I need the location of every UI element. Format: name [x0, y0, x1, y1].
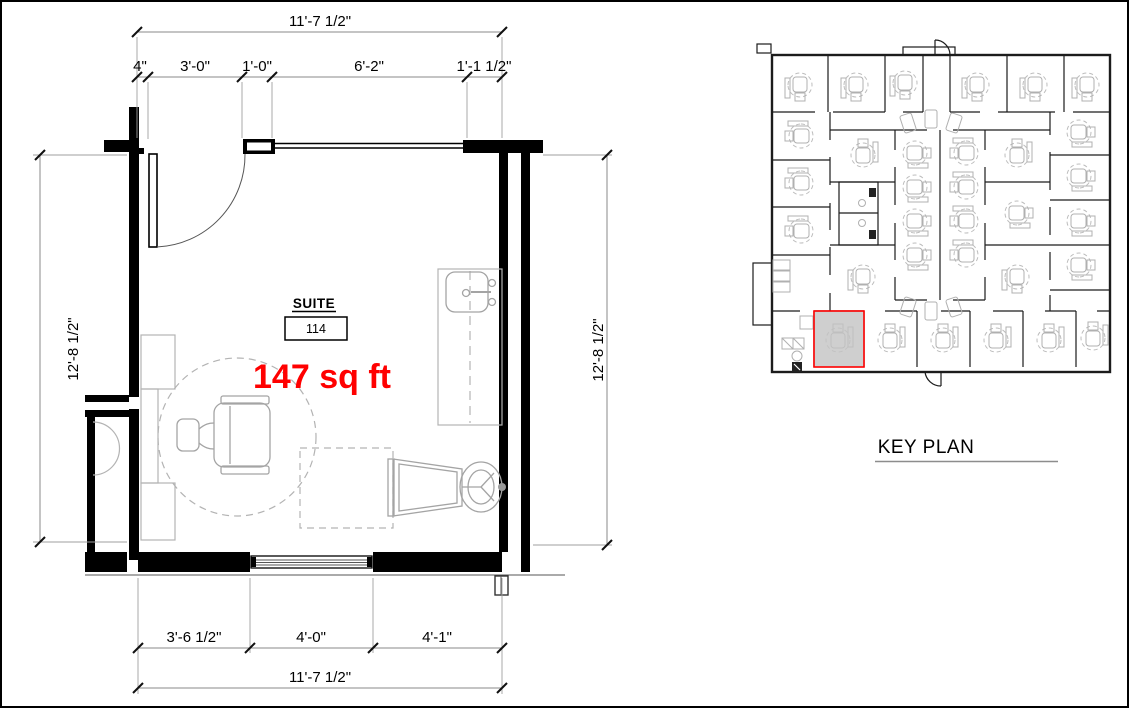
door-leaf	[149, 154, 157, 247]
key-plan-title: KEY PLAN	[878, 437, 975, 458]
dim-top-seg-1: 4"	[133, 58, 147, 75]
window-bottom	[251, 556, 372, 568]
dim-bottom-seg-3: 4'-1"	[422, 629, 452, 646]
suite-number: 114	[306, 322, 326, 336]
sheet-border	[1, 1, 1128, 707]
dim-top-seg-2: 3'-0"	[180, 58, 210, 75]
dim-bottom-seg-2: 4'-0"	[296, 629, 326, 646]
dim-bottom-overall: 11'-7 1/2"	[289, 669, 351, 686]
dim-top-seg-3: 1'-0"	[242, 58, 272, 75]
highlighted-room	[814, 311, 864, 367]
dim-top-overall: 11'-7 1/2"	[289, 13, 351, 30]
dim-top-seg-5: 1'-1 1/2"	[457, 58, 512, 75]
architectural-drawing-sheet: 11'-7 1/2" 4" 3'-0" 1'-0" 6'-2" 1'-1 1/2…	[0, 0, 1129, 708]
dim-right-height: 12'-8 1/2"	[590, 318, 607, 381]
dim-left-height: 12'-8 1/2"	[65, 317, 82, 380]
suite-label: SUITE	[293, 296, 335, 311]
dim-bottom-seg-1: 3'-6 1/2"	[167, 629, 222, 646]
drawing-canvas: 11'-7 1/2" 4" 3'-0" 1'-0" 6'-2" 1'-1 1/2…	[0, 0, 1129, 708]
dim-top-seg-4: 6'-2"	[354, 58, 384, 75]
area-text: 147 sq ft	[253, 358, 391, 396]
